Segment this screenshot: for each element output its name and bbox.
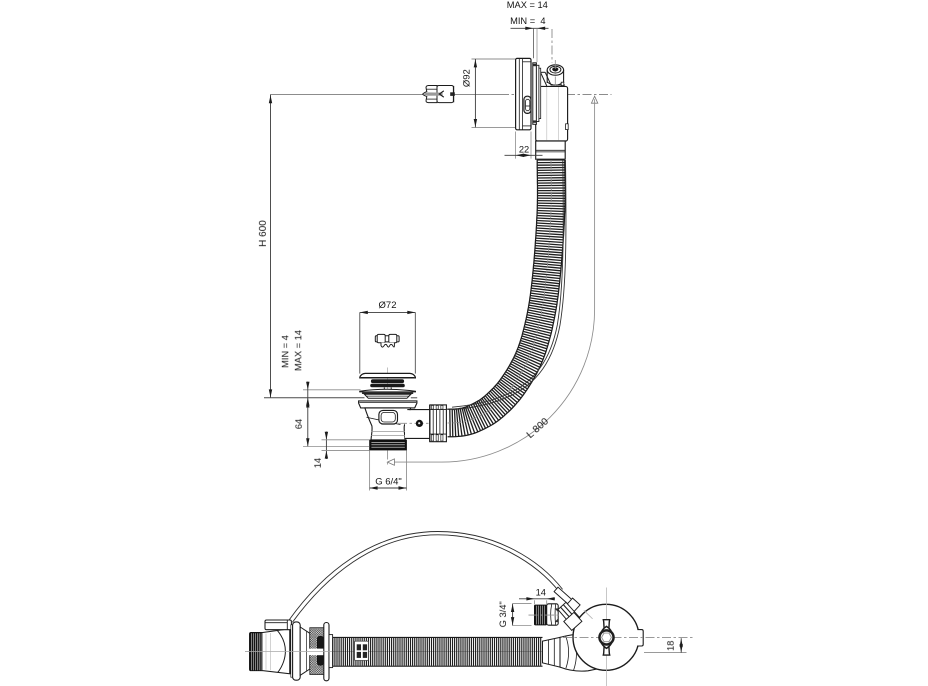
svg-text:Ø92: Ø92 <box>462 69 473 87</box>
svg-text:18: 18 <box>666 641 676 651</box>
svg-text:MIN = 4: MIN = 4 <box>510 16 545 26</box>
svg-text:G 6/4": G 6/4" <box>375 476 402 487</box>
svg-text:64: 64 <box>294 419 304 429</box>
svg-text:Ø72: Ø72 <box>379 300 397 311</box>
svg-text:MIN = 4: MIN = 4 <box>280 335 290 368</box>
svg-text:14: 14 <box>313 458 323 468</box>
svg-text:MAX = 14: MAX = 14 <box>507 0 548 10</box>
svg-text:22: 22 <box>519 144 529 154</box>
svg-text:G 3/4": G 3/4" <box>498 601 508 627</box>
svg-text:14: 14 <box>536 588 546 598</box>
svg-text:H 600: H 600 <box>258 220 269 247</box>
svg-text:MAX = 14: MAX = 14 <box>293 330 303 371</box>
